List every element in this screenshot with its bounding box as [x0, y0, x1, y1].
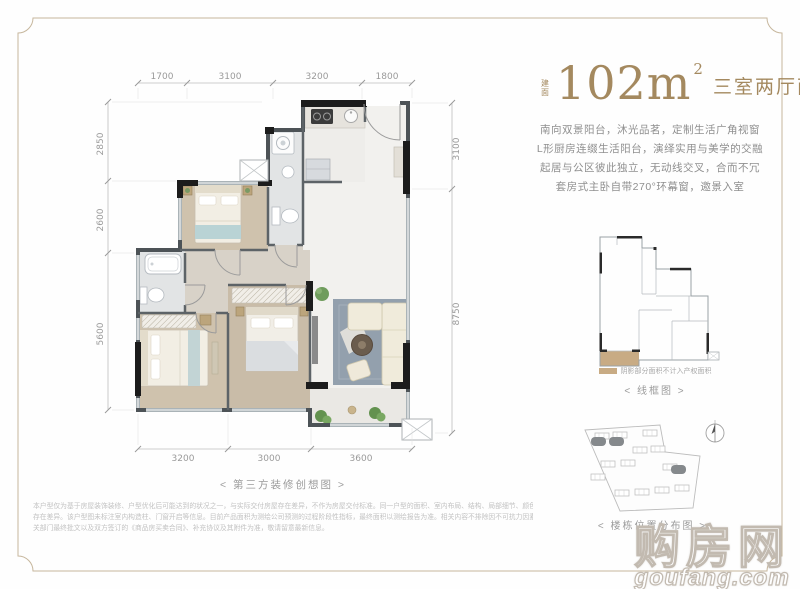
stove-icon	[311, 109, 333, 124]
dim-label: 3600	[350, 454, 373, 464]
watermark-domain: goufang.com	[634, 565, 790, 589]
dim-label: 3100	[219, 72, 242, 82]
dim-label: 8750	[452, 302, 462, 325]
shade-legend-label: 阴影部分面积不计入产权面积	[621, 366, 712, 376]
nightstand-icon	[200, 315, 211, 325]
disclaimer-text: 本户型仅为基于房屋装饰装修、户型优化后可能达到的状况之一，与实际交付房屋存在差异…	[33, 501, 533, 534]
unit-title: 建面 102m 2 三室两厅两卫	[541, 60, 793, 104]
selling-point-line: 套房式主卧自带270°环幕窗，邀景入室	[513, 178, 787, 197]
disclaimer-line: 存在差异。该户型图未标注室内构造柱、门窗开启等信息。目前产品面积为测绘公司预测的…	[33, 512, 533, 523]
bed-icon	[195, 185, 241, 243]
tv-console-icon	[312, 316, 318, 364]
bench-icon	[212, 342, 218, 374]
selling-points: 南向双景阳台，沐光品茗，定制生活广角视窗 L形厨房连缀生活阳台，演绎实用与美学的…	[513, 121, 787, 197]
wireframe-legend: 阴影部分面积不计入产权面积	[565, 366, 745, 376]
selling-point-line: 起居与公区彼此独立，无动线交叉，合而不冗	[513, 159, 787, 178]
layout-label: 三室两厅两卫	[713, 72, 800, 99]
basket-icon	[348, 406, 356, 414]
disclaimer-line: 本户型仅为基于房屋装饰装修、户型优化后可能达到的状况之一，与实际交付房屋存在差异…	[33, 501, 533, 512]
toilet-icon	[272, 207, 280, 225]
floorplan-poster-page: 1700 3100 3200 1800 2850 2600 5600 3100 …	[0, 0, 800, 589]
ac-box-icon	[402, 419, 432, 440]
dim-label: 1800	[376, 72, 399, 82]
shaded-balcony-area	[600, 351, 639, 366]
compass-icon	[706, 420, 724, 442]
wardrobe-icon	[142, 315, 196, 328]
selling-point-line: L形厨房连缀生活阳台，演绎实用与美学的交融	[513, 140, 787, 159]
floor-plan-caption: < 第三方装修创想图 >	[158, 477, 408, 492]
dim-label: 3000	[258, 454, 281, 464]
selling-point-line: 南向双景阳台，沐光品茗，定制生活广角视窗	[513, 121, 787, 140]
dim-label: 3100	[452, 137, 462, 160]
shade-swatch	[599, 368, 617, 374]
bed-icon	[246, 307, 298, 371]
floor-plan-drawing: 1700 3100 3200 1800 2850 2600 5600 3100 …	[0, 0, 540, 500]
wireframe-caption: < 线框图 >	[565, 382, 745, 397]
site-plan-map	[563, 417, 743, 517]
wireframe-mini-plan	[575, 233, 735, 378]
wardrobe-icon	[232, 288, 306, 303]
dim-label: 3200	[306, 72, 329, 82]
watermark: 购房网 goufang.com	[634, 525, 790, 589]
area-value: 102m	[556, 63, 691, 104]
ac-box-icon	[240, 160, 268, 181]
diamond-icon	[550, 91, 553, 94]
ac-box-icon	[708, 352, 719, 360]
disclaimer-line: 关部门最终批文以及双方签订的《商品房买卖合同》、补充协议及其附件为准，敬请留意最…	[33, 523, 533, 534]
watermark-brand: 购房网	[634, 525, 790, 569]
toilet-icon	[140, 287, 147, 304]
basin-icon	[282, 166, 294, 178]
area-superscript: 2	[693, 60, 703, 78]
nightstand-icon	[236, 307, 244, 316]
dim-label: 5600	[96, 322, 106, 345]
bed-icon	[140, 330, 208, 386]
dim-label: 1700	[151, 72, 174, 82]
fridge-icon	[306, 159, 330, 180]
dim-label: 3200	[172, 454, 195, 464]
dim-label: 2600	[96, 208, 106, 231]
area-prefix: 建面	[541, 79, 549, 97]
dim-label: 2850	[96, 132, 106, 155]
